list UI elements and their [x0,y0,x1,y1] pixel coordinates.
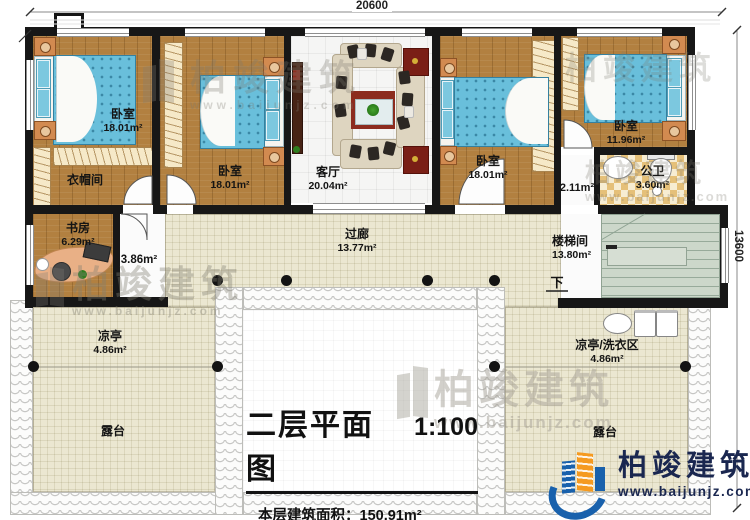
label-study: 书房 6.29m² [44,222,112,248]
label-pavilion-right: 凉亭/洗衣区 4.86m² [551,339,663,365]
cushion [334,103,347,117]
bed-pillow [442,110,453,138]
window-bedroom3 [462,28,532,37]
stair-landing [607,247,687,266]
wall-study-south [25,297,168,307]
wardrobe-bedroom2 [164,42,183,168]
nightstand [662,121,686,141]
company-logo: 柏竣建筑 www.baijunjz.com [548,451,750,509]
cushion [398,70,411,84]
wall-bath-divider [594,155,600,205]
wall-stairwell-south [558,298,728,308]
wardrobe-cloakroom-left [33,147,51,207]
wall-interior [505,205,561,214]
wall-interior [425,205,455,214]
wall-interior [193,205,313,214]
label-bathroom: 公卫 3.60m² [625,165,680,191]
column [212,361,223,372]
window-living [305,28,425,37]
bed-pillow [668,88,681,116]
cushion [349,144,362,159]
room-stair-hall-floor [561,155,594,205]
terrace-left-roof-edge-south [10,492,238,515]
dimension-right: 13600 [732,224,744,268]
column [422,275,433,286]
label-bedroom2: 卧室 18.01m² [193,165,267,191]
company-name: 柏竣建筑 [618,451,750,483]
title-block: 二层平面图 1:100 本层建筑面积：150.91m² 层高：3.3m [246,400,478,520]
label-bedroom3: 卧室 18.01m² [451,155,525,181]
nightstand [662,34,686,54]
column [680,361,691,372]
window-stairwell-east [721,228,729,283]
bed-blanket [200,76,235,146]
desk-lamp-icon [36,258,49,271]
window-living-south [313,203,425,214]
company-logo-icon [548,451,610,509]
plant-icon [78,270,87,279]
court-roof-edge-east [477,287,505,515]
floor-area-line: 本层建筑面积：150.91m² [258,504,478,520]
wall-bedroom4-south [594,147,695,155]
cushion [404,106,414,118]
plant-icon [293,146,300,153]
wardrobe-bedroom4 [562,37,579,111]
label-terrace-left: 露台 [90,425,136,439]
label-bedroom1: 卧室 18.01m² [86,108,160,134]
label-terrace-right: 露台 [582,426,628,440]
decor-item [293,70,300,80]
cushion [367,146,379,160]
column [28,361,39,372]
court-roof-edge-west [215,287,243,515]
label-stair-down: 下 [547,276,567,291]
label-pavilion-left: 凉亭 4.86m² [78,330,142,356]
company-website: www.baijunjz.com [618,484,750,499]
table-lamp-icon [412,58,418,64]
nightstand [440,58,457,77]
bed-pillow [37,89,50,117]
label-stairwell: 楼梯间 13.80m² [552,235,614,261]
court-roof-edge-north [243,287,477,310]
wall-interior [153,205,167,214]
window-bedroom4-east [688,55,696,130]
bed-blanket [505,78,548,144]
cushion [402,93,414,107]
plant-icon [367,104,379,116]
label-corridor: 过廊 13.77m² [320,228,394,254]
cushion [357,48,367,60]
bed-pillow [266,80,279,109]
page-title: 二层平面图 [246,400,405,488]
nightstand [34,37,56,56]
bed-pillow [266,111,279,140]
window-bedroom1 [57,28,129,37]
window-bedroom4 [577,28,662,37]
terrace-left-roof-edge-west [10,300,33,515]
bed-pillow [442,81,453,109]
title-underline [246,491,478,494]
wall-interior [25,205,123,214]
nightstand [263,147,285,166]
wall-study-east [113,205,120,298]
label-side-hall: 3.86m² [110,254,168,267]
window-study-west [26,225,34,285]
washing-machine [634,310,656,337]
laundry-sink-icon [603,313,632,334]
column [212,275,223,286]
column [281,275,292,286]
floor-plan: 20600 13600 卧室 18.01m² 衣帽间 卧室 18.01m² 客厅… [0,0,750,520]
desk-chair [52,262,71,281]
drawing-scale: 1:100 [414,413,478,442]
washing-machine [656,310,678,337]
bed-pillow [37,60,50,88]
cushion [336,76,348,90]
column [489,361,500,372]
column [489,275,500,286]
label-living: 客厅 20.04m² [291,166,365,192]
window-bedroom2 [185,28,265,37]
label-stair-hall: 2.11m² [551,182,603,195]
bed-pillow [668,59,681,87]
table-lamp-icon [412,156,418,162]
window-bedroom1-west [26,60,34,130]
wall-stairwell-north [598,205,728,214]
wall-interior [284,36,291,205]
label-bedroom4: 卧室 11.96m² [589,120,663,146]
label-cloakroom: 衣帽间 [56,174,114,188]
nightstand [34,121,56,140]
dimension-top: 20600 [352,0,392,12]
wardrobe-cloakroom-top [53,147,155,166]
bed-blanket [584,55,615,120]
nightstand [263,57,285,76]
wall-interior [432,36,440,205]
